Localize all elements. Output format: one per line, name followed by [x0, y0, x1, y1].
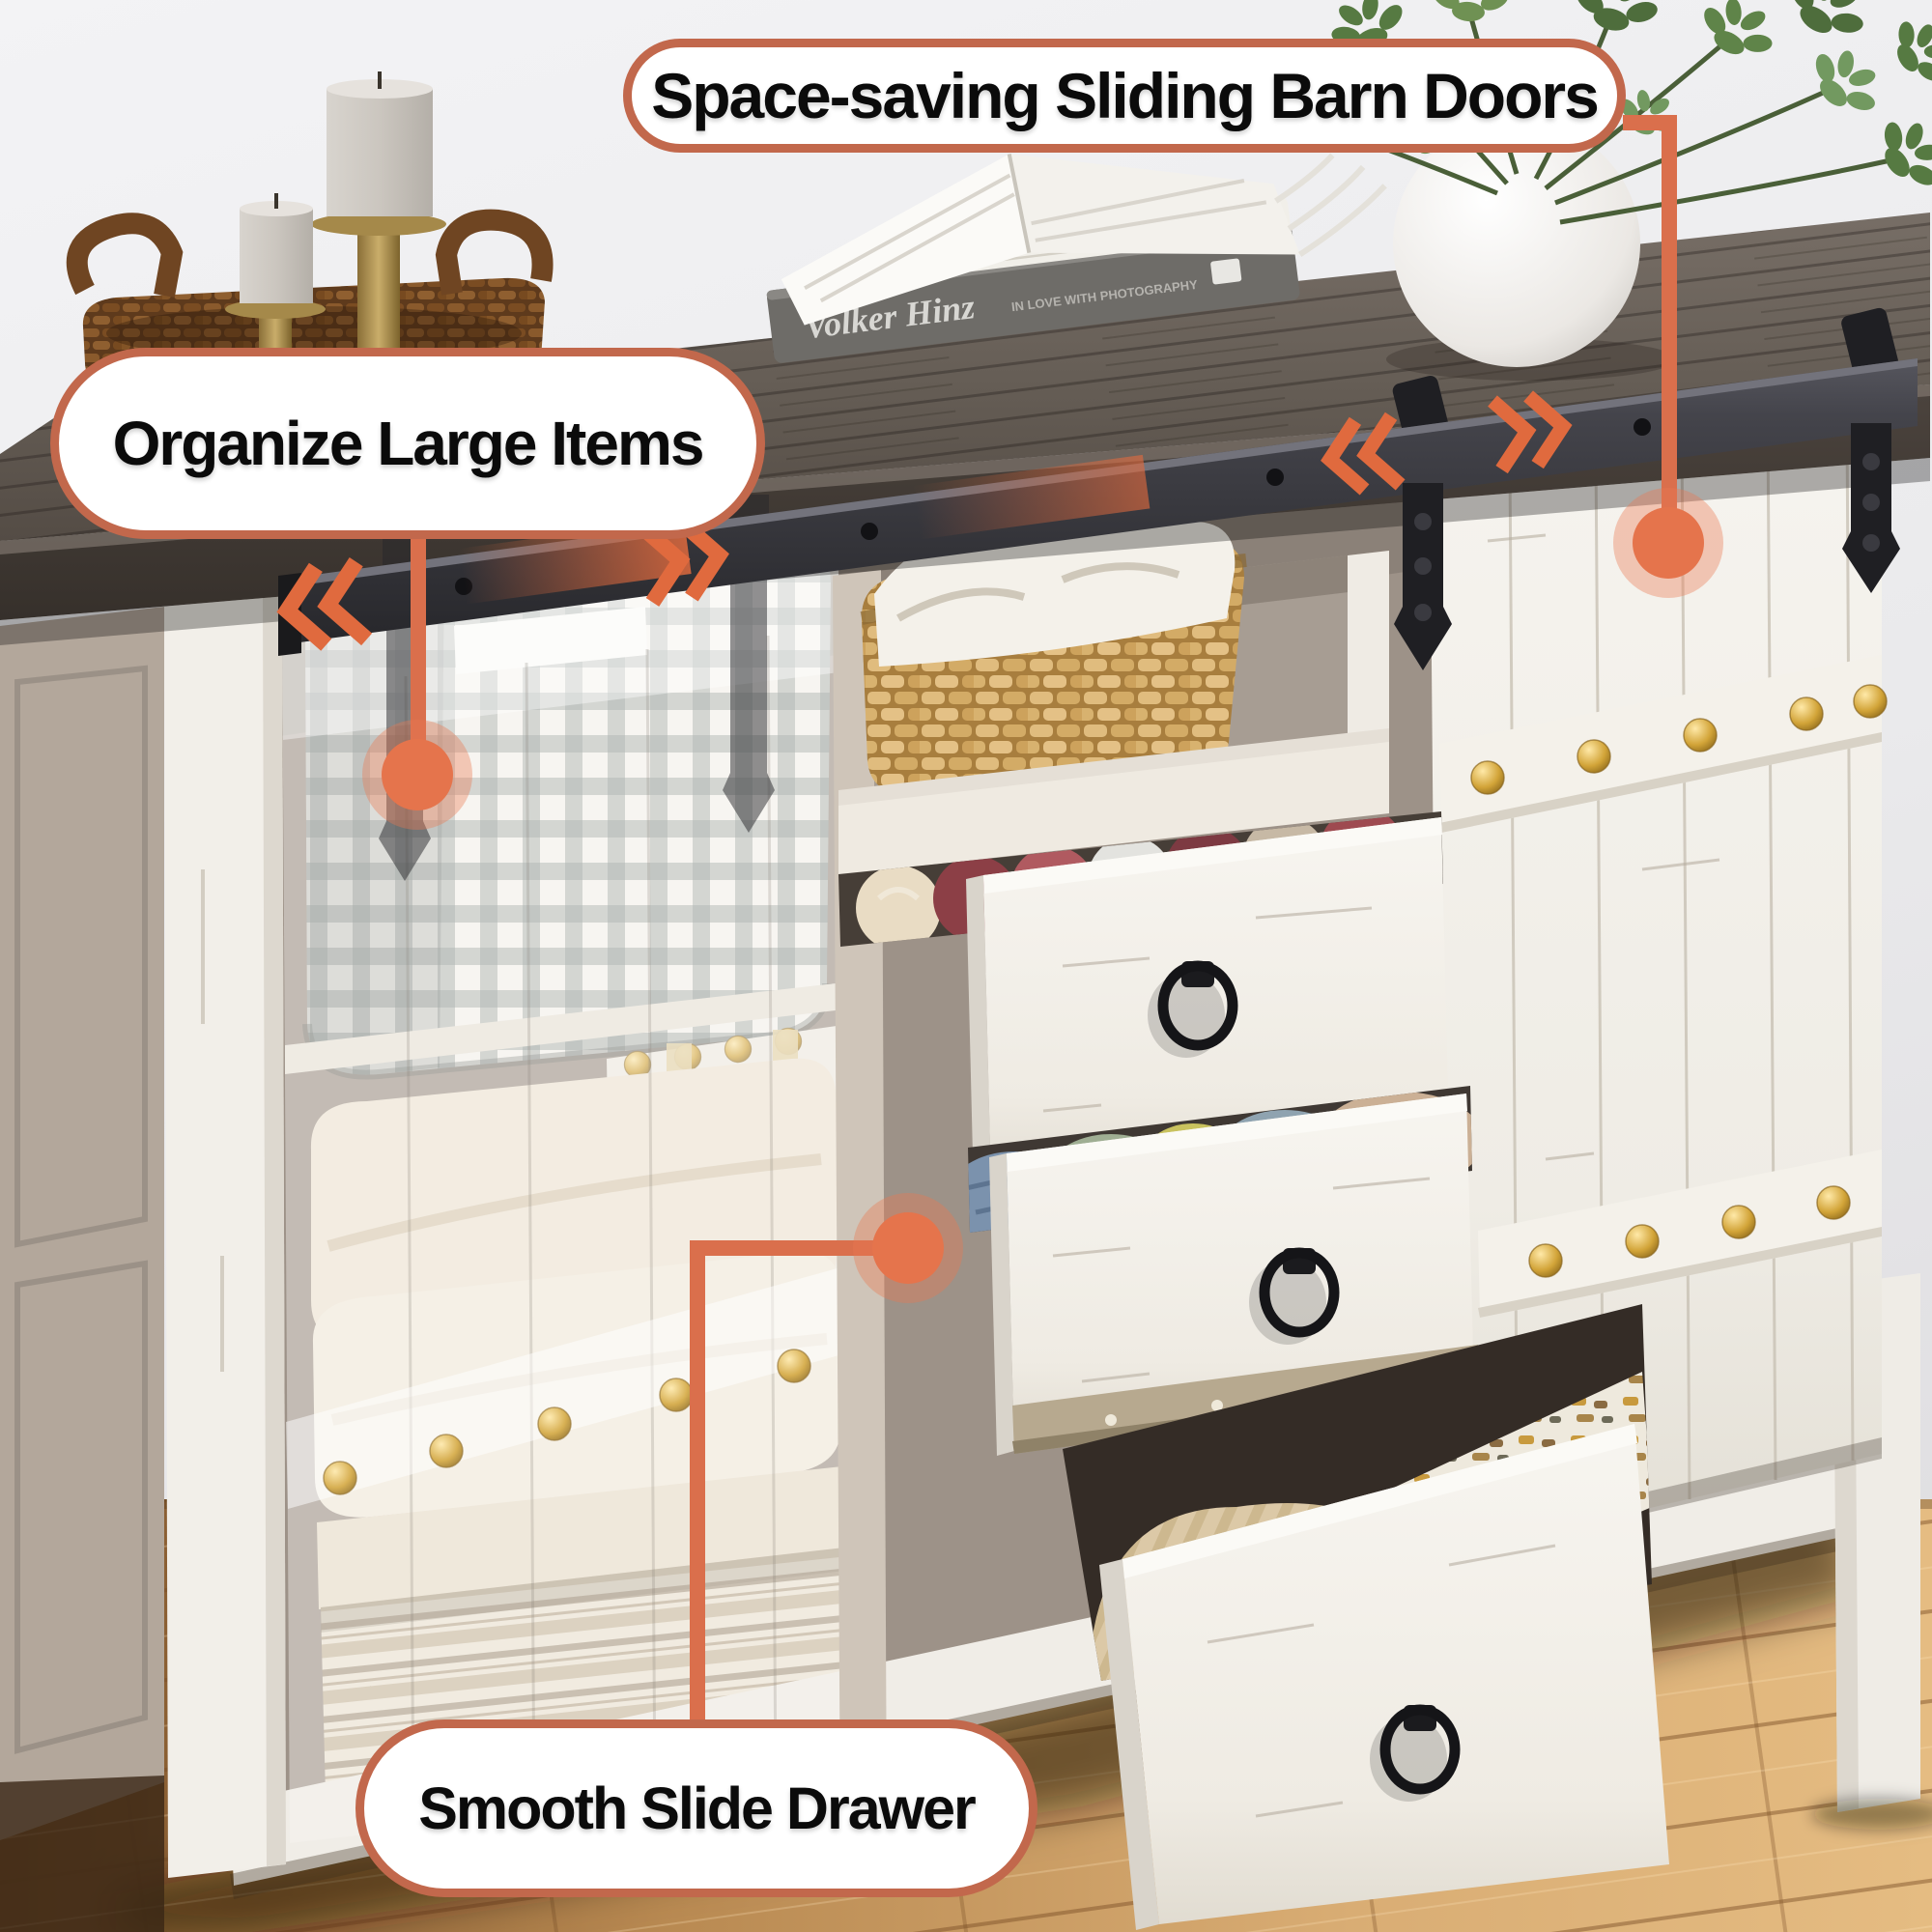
callout-sliding-barn-doors-label: Space-saving Sliding Barn Doors — [651, 59, 1598, 132]
furniture-scene: Volker Hinz IN LOVE WITH PHOTOGRAPHY — [0, 0, 1932, 1932]
left-side-panel — [0, 607, 164, 1932]
callout-sliding-barn-doors: Space-saving Sliding Barn Doors — [623, 39, 1626, 153]
front-left-stile — [164, 593, 286, 1878]
callout-smooth-slide-drawer-label: Smooth Slide Drawer — [418, 1775, 975, 1842]
callout-organize-large-items-label: Organize Large Items — [113, 408, 703, 479]
callout-organize-large-items: Organize Large Items — [50, 348, 765, 539]
product-feature-image: Volker Hinz IN LOVE WITH PHOTOGRAPHY — [0, 0, 1932, 1932]
callout-smooth-slide-drawer: Smooth Slide Drawer — [355, 1719, 1037, 1897]
